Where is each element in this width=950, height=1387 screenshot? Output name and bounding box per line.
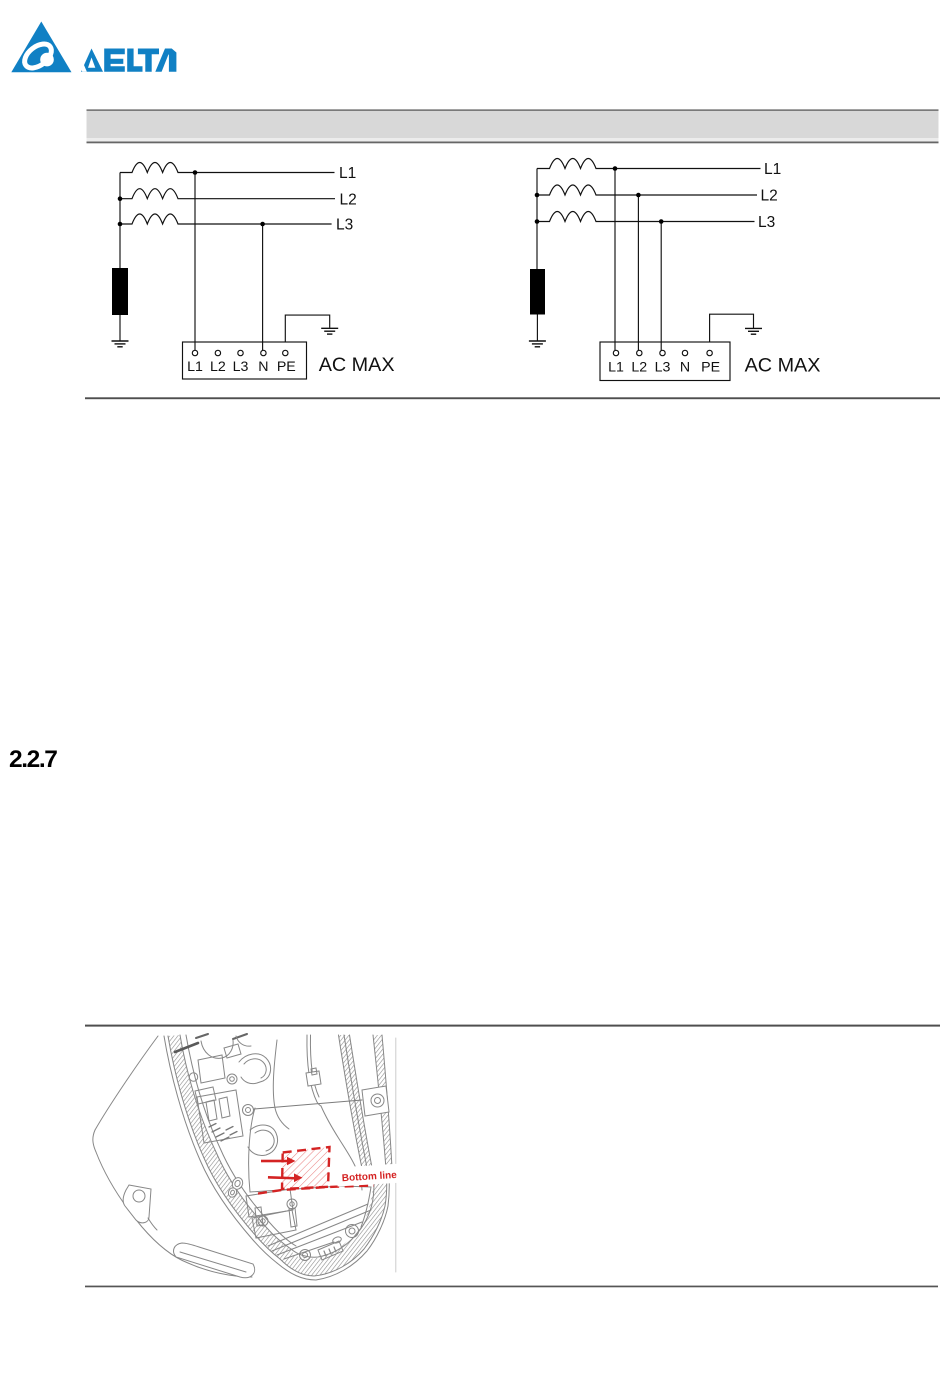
svg-text:L2: L2: [631, 360, 647, 376]
svg-text:L2: L2: [340, 191, 357, 208]
svg-text:L2: L2: [761, 188, 778, 205]
svg-text:L3: L3: [758, 214, 775, 231]
svg-text:2.2.7: 2.2.7: [9, 746, 57, 773]
svg-text:L1: L1: [187, 359, 203, 375]
svg-text:L1: L1: [339, 165, 356, 182]
svg-text:AC MAX: AC MAX: [319, 354, 395, 376]
svg-text:N: N: [680, 360, 690, 376]
svg-text:L1: L1: [608, 360, 624, 376]
svg-text:L3: L3: [233, 359, 249, 375]
svg-text:L3: L3: [336, 217, 353, 234]
svg-text:PE: PE: [277, 359, 296, 375]
svg-text:L1: L1: [764, 161, 781, 178]
svg-text:AC MAX: AC MAX: [745, 355, 821, 377]
svg-text:L3: L3: [655, 360, 671, 376]
svg-text:PE: PE: [701, 360, 720, 376]
svg-text:L2: L2: [210, 359, 226, 375]
svg-text:N: N: [258, 359, 268, 375]
